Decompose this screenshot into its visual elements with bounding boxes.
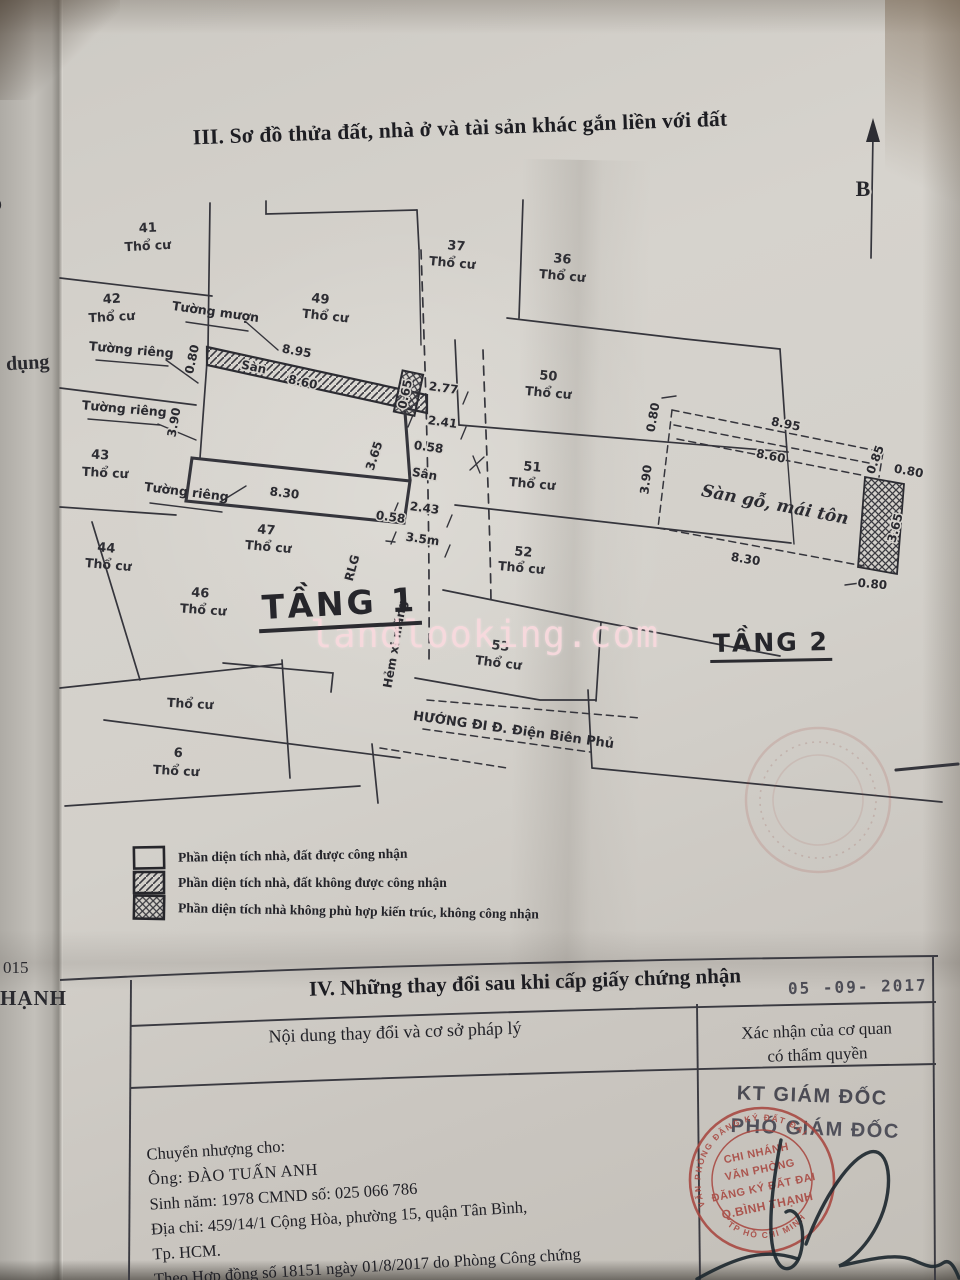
section4-column-right-header: Xác nhận của cơ quan có thẩm quyền bbox=[702, 1015, 932, 1071]
dim-0-58b: 0.58 bbox=[375, 508, 406, 526]
legend-swatch-plain bbox=[132, 845, 166, 871]
lot-37-number: 37 bbox=[447, 238, 466, 255]
legend-text-recognized: Phần diện tích nhà, đất được công nhận bbox=[178, 845, 408, 865]
lot-unnumbered-type: Thổ cư bbox=[167, 695, 215, 712]
lot-52-type: Thổ cư bbox=[497, 558, 546, 577]
lot-46-number: 46 bbox=[191, 585, 210, 601]
wall-label-muon: Tường mượn bbox=[171, 298, 260, 325]
floor1-title: TẦNG 1 bbox=[257, 580, 422, 633]
lot-37-type: Thổ cư bbox=[428, 253, 477, 272]
lot-43-number: 43 bbox=[91, 448, 110, 464]
lot-51-type: Thổ cư bbox=[508, 474, 557, 493]
dim-rlg: RLG bbox=[342, 553, 362, 582]
legend-text-not-recognized: Phần diện tích nhà, đất không được công … bbox=[178, 875, 447, 891]
lot-44-number: 44 bbox=[97, 540, 116, 557]
wall-label-rieng1: Tường riêng bbox=[88, 338, 174, 360]
floor2-title: TẦNG 2 bbox=[710, 627, 833, 663]
plan2-floor-label: Sàn gỗ, mái tôn bbox=[700, 480, 851, 529]
dim-3-5m: 3.5m bbox=[405, 530, 440, 549]
ghost-stamp bbox=[737, 719, 900, 882]
lot-49-type: Thổ cư bbox=[301, 306, 350, 326]
lot-50-number: 50 bbox=[539, 368, 558, 385]
lot-49-number: 49 bbox=[311, 291, 331, 308]
dim-8-95: 8.95 bbox=[281, 342, 313, 361]
legend-row-not-recognized: Phần diện tích nhà, đất không được công … bbox=[132, 869, 539, 896]
p2-dim-top-0-80: 0.80 bbox=[644, 402, 663, 434]
p2-dim-8-60: 8.60 bbox=[755, 446, 787, 465]
lot-50-type: Thổ cư bbox=[524, 383, 573, 402]
scanned-land-certificate-page: ỏ dụng 015 HẠNH III. Sơ đồ thửa đất, nhà… bbox=[0, 0, 960, 1280]
lot-44-type: Thổ cư bbox=[84, 555, 133, 574]
wall-label-rieng2: Tường riêng bbox=[81, 397, 167, 419]
lot-47-type: Thổ cư bbox=[244, 537, 293, 556]
lot-47-number: 47 bbox=[257, 522, 276, 539]
lot-46-type: Thổ cư bbox=[180, 600, 229, 618]
street-direction-label: HƯỚNG ĐI Đ. Điện Biên Phủ bbox=[412, 708, 615, 752]
legend-text-architecture: Phần diện tích nhà không phù hợp kiến tr… bbox=[178, 900, 539, 922]
lot-36-number: 36 bbox=[553, 251, 572, 268]
lot-43-type: Thổ cư bbox=[82, 464, 130, 481]
lot-36-type: Thổ cư bbox=[538, 266, 587, 285]
lot-41-number: 41 bbox=[138, 221, 157, 237]
p2-dim-8-30: 8.30 bbox=[730, 550, 761, 568]
dim-2-41: 2.41 bbox=[427, 413, 458, 431]
dim-san: Sân bbox=[411, 465, 438, 483]
legend-row-architecture: Phần diện tích nhà không phù hợp kiến tr… bbox=[132, 893, 539, 927]
legend: Phần diện tích nhà, đất được công nhận P… bbox=[132, 841, 539, 925]
p2-dim-3-90: 3.90 bbox=[637, 464, 655, 495]
legend-swatch-crosshatch bbox=[132, 893, 166, 921]
dim-0-58a: 0.58 bbox=[413, 438, 444, 456]
legend-row-recognized: Phần diện tích nhà, đất được công nhận bbox=[132, 837, 539, 871]
dim-3-65: 3.65 bbox=[363, 440, 385, 472]
lot-42-number: 42 bbox=[102, 292, 121, 308]
p2-dim-8-95: 8.95 bbox=[770, 414, 802, 433]
legend-swatch-diagonal bbox=[132, 870, 166, 895]
lot-6-type: Thổ cư bbox=[153, 762, 201, 779]
lot-51-number: 51 bbox=[523, 459, 542, 476]
lot-41-type: Thổ cư bbox=[124, 237, 172, 254]
approval-kt-line: KT GIÁM ĐỐC bbox=[736, 1080, 888, 1109]
dim-8-30: 8.30 bbox=[269, 484, 300, 502]
p2-dim-bottom-0-80: 0.80 bbox=[857, 576, 888, 593]
dim-2-77: 2.77 bbox=[428, 379, 459, 397]
dim-2-43: 2.43 bbox=[409, 499, 440, 517]
p2-dim-right-0-80: 0.80 bbox=[893, 462, 925, 481]
dim-0-80: 0.80 bbox=[182, 343, 202, 375]
lot-6-number: 6 bbox=[173, 746, 183, 761]
lot-52-number: 52 bbox=[514, 544, 533, 561]
lot-42-type: Thổ cư bbox=[88, 308, 136, 325]
north-label: B bbox=[856, 176, 871, 201]
